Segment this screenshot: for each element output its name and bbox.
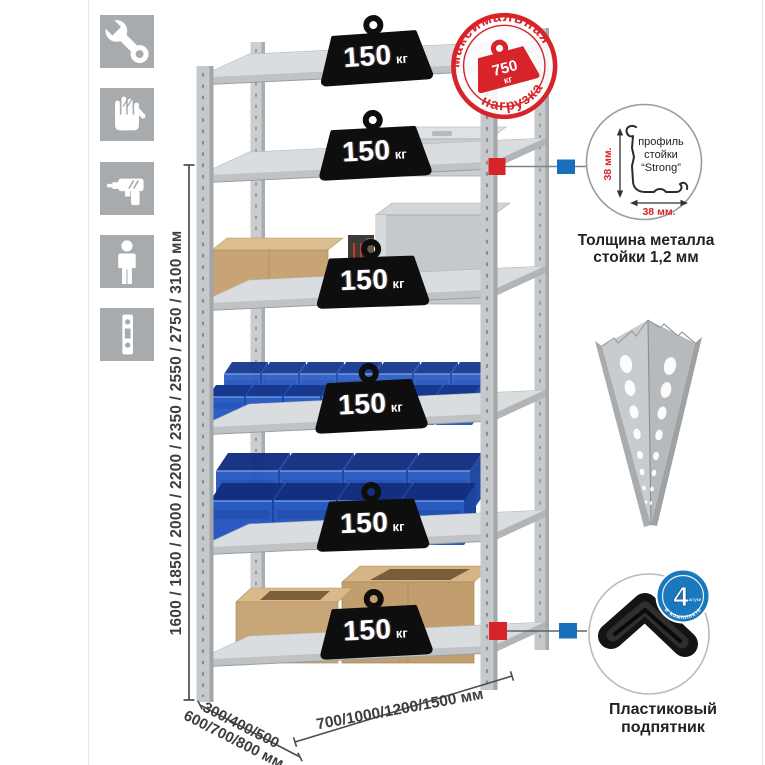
shelf-load-weight: 150кг [307, 358, 433, 436]
gloves-icon [100, 88, 154, 141]
angle-post-image [594, 300, 709, 535]
post-profile-detail: 38 мм. 38 мм. профиль стойки “Strong” [584, 102, 704, 222]
shelf-load-weight: 150кг [312, 584, 438, 662]
left-border-line [88, 0, 89, 765]
shelf-load-weight: 150кг [310, 478, 434, 554]
profile-caption: Толщина металла стойки 1,2 мм [570, 232, 722, 266]
badge-number: 4 [673, 581, 689, 612]
wrench-icon [100, 15, 154, 68]
profile-label-1: профиль [638, 136, 684, 148]
foot-caption: Пластиковый подпятник [582, 701, 744, 737]
kit-quantity-badge: 4 штуки в комплекте [654, 567, 712, 625]
load-unit: кг [395, 51, 408, 67]
drill-icon [100, 162, 154, 215]
shelf-load-weight: 150кг [311, 105, 437, 183]
dim-38-vertical: 38 мм. [602, 147, 614, 180]
shelving-rack-infographic: 150кг 150кг 150кг 150кг 150кг [0, 0, 765, 765]
profile-label-3: “Strong” [641, 162, 681, 174]
badge-small-text: штуки [689, 597, 702, 602]
person-icon [100, 235, 154, 288]
perforated-post-icon [100, 308, 154, 361]
dim-38-horizontal: 38 мм. [642, 206, 675, 218]
profile-label-2: стойки [644, 149, 678, 161]
shelf-load-weight: 150кг [310, 235, 434, 311]
shelf-load-weight: 150кг [312, 9, 439, 89]
height-dimension-label: 1600 / 1850 / 2000 / 2200 / 2350 / 2550 … [168, 231, 186, 636]
right-border-line [762, 0, 763, 765]
load-value: 150 [342, 39, 392, 74]
